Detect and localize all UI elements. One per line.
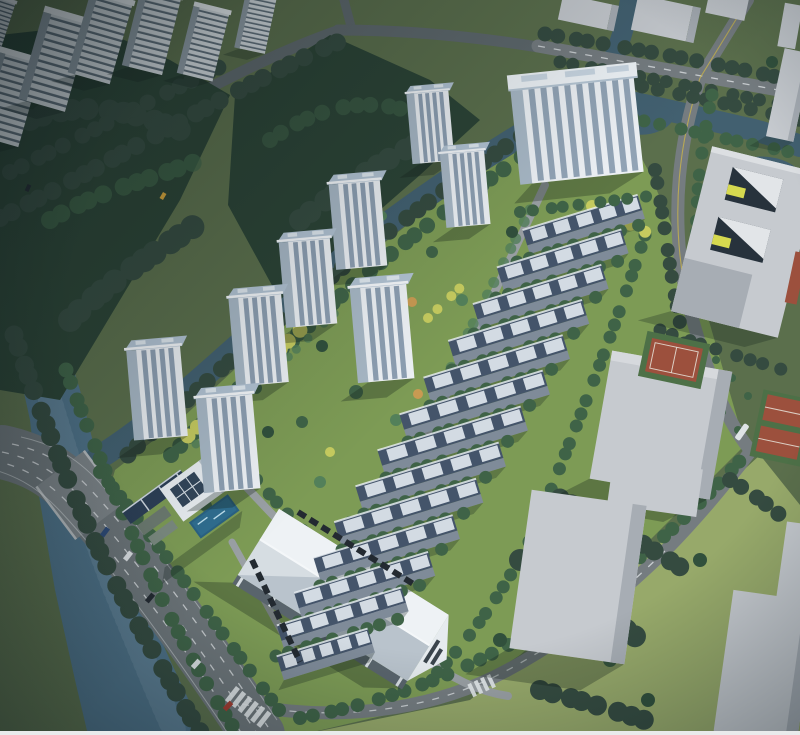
- image-border-bottom: [0, 731, 800, 735]
- aerial-masterplan-rendering: [0, 0, 800, 735]
- rendering-canvas: [0, 0, 800, 735]
- tower-wide-slab: [501, 62, 650, 204]
